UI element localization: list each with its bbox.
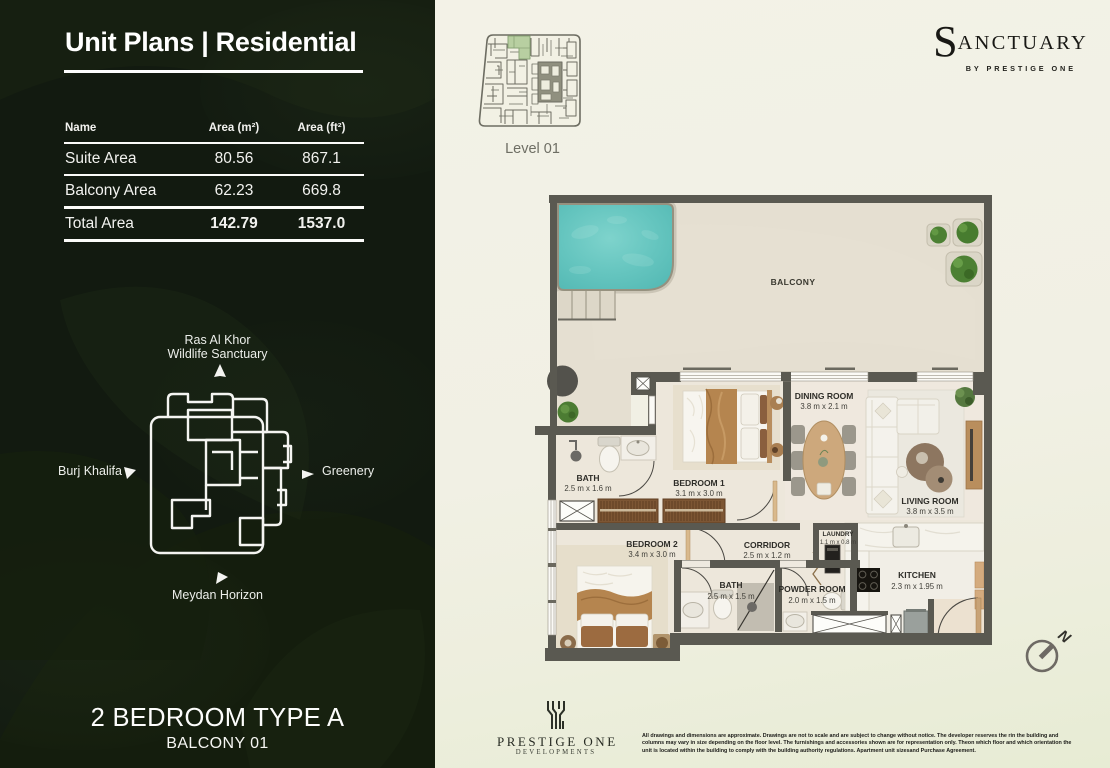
svg-text:3.4 m x 3.0 m: 3.4 m x 3.0 m [628,550,675,559]
svg-text:CORRIDOR: CORRIDOR [744,540,790,550]
svg-text:DINING ROOM: DINING ROOM [795,391,854,401]
svg-text:BATH: BATH [577,473,600,483]
svg-text:POWDER ROOM: POWDER ROOM [778,584,845,594]
svg-text:BATH: BATH [720,580,743,590]
svg-text:3.1 m x 3.0 m: 3.1 m x 3.0 m [675,489,722,498]
svg-text:BEDROOM 1: BEDROOM 1 [673,478,725,488]
svg-text:KITCHEN: KITCHEN [898,570,936,580]
svg-text:LAUNDRY: LAUNDRY [822,531,854,538]
svg-text:2.5 m x 1.5 m: 2.5 m x 1.5 m [707,592,754,601]
svg-text:N: N [1055,627,1075,648]
svg-text:LIVING ROOM: LIVING ROOM [901,496,958,506]
svg-text:2.3 m x 1.95 m: 2.3 m x 1.95 m [891,582,943,591]
svg-text:2.5 m x 1.2 m: 2.5 m x 1.2 m [743,551,790,560]
svg-text:BALCONY: BALCONY [771,277,816,287]
svg-text:3.8 m x 3.5 m: 3.8 m x 3.5 m [906,507,953,516]
svg-text:2.0 m x 1.5 m: 2.0 m x 1.5 m [788,596,835,605]
svg-text:BEDROOM 2: BEDROOM 2 [626,539,678,549]
svg-text:3.8 m x 2.1 m: 3.8 m x 2.1 m [800,402,847,411]
svg-text:1.1 m x 0.8 m: 1.1 m x 0.8 m [820,540,856,546]
svg-text:2.5 m x 1.6 m: 2.5 m x 1.6 m [564,484,611,493]
